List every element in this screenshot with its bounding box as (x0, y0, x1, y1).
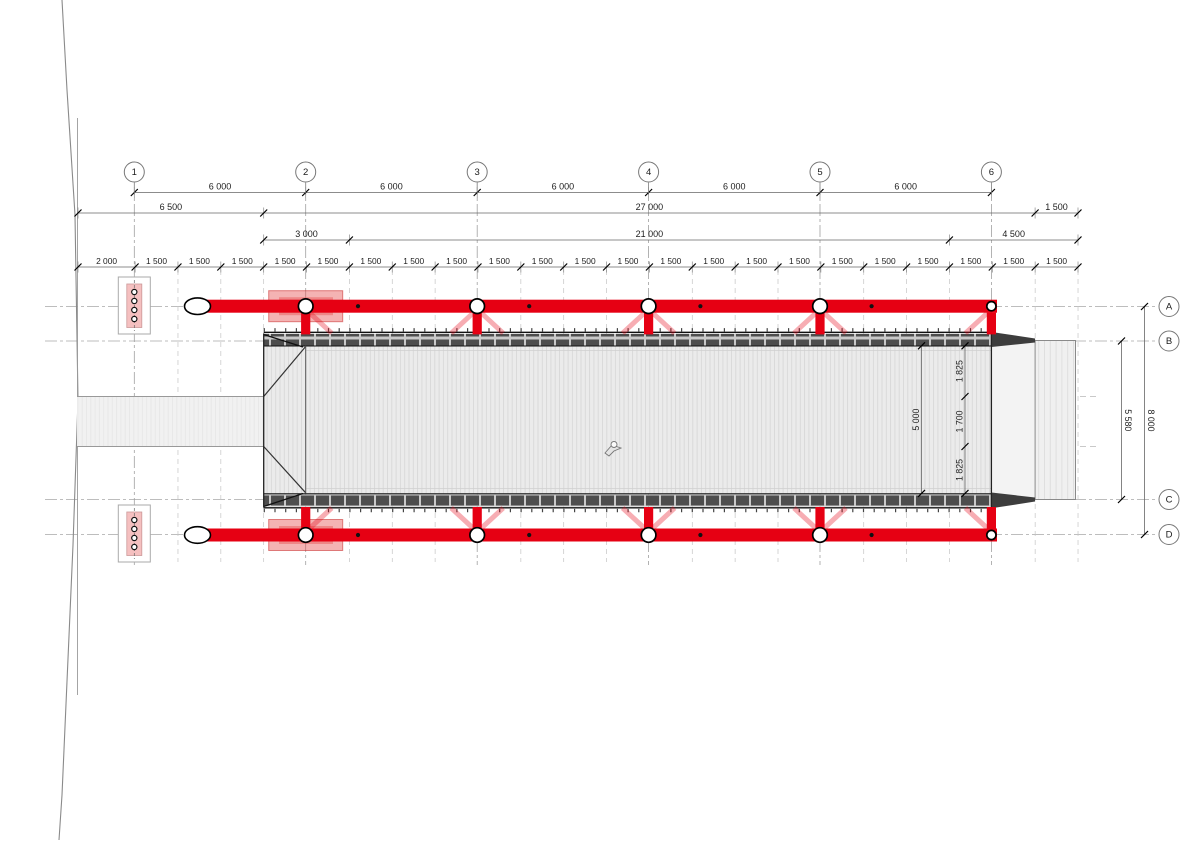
grid-bubble-label: B (1166, 336, 1172, 347)
dimension-label: 1 500 (918, 256, 939, 266)
bridge-plan-drawing: 6 0006 0006 0006 0006 0006 50027 0001 50… (0, 0, 1200, 848)
truss-node (298, 299, 313, 314)
dimension-label: 1 500 (1045, 202, 1068, 212)
grid-bubble-row-C: C (1159, 490, 1179, 510)
dimension-label: 1 825 (955, 459, 965, 481)
grid-bubble-row-D: D (1159, 525, 1179, 545)
dimension-label: 1 500 (146, 256, 167, 266)
grid-bubble-label: C (1166, 495, 1173, 506)
dimension-label: 8 000 (1146, 409, 1156, 431)
dimension-label: 1 500 (1003, 256, 1024, 266)
truss-node (813, 299, 828, 314)
dimension-label: 1 700 (955, 410, 965, 432)
anchor-circle (132, 544, 137, 549)
dimension-label: 1 500 (832, 256, 853, 266)
dimension-label: 1 500 (660, 256, 681, 266)
dimension-label: 1 500 (746, 256, 767, 266)
anchor-circle (132, 298, 137, 303)
ellipse-cap (185, 527, 211, 544)
approach-path (77, 397, 264, 447)
pier (118, 277, 150, 334)
truss-row-D (185, 507, 998, 551)
dimension-label: 4 500 (1002, 229, 1025, 239)
anchor-circle (132, 289, 137, 294)
site-boundary-lines (59, 0, 78, 840)
landing-slab (1035, 341, 1075, 500)
grid-bubble-label: 4 (646, 167, 651, 178)
grid-bubble-row-A: A (1159, 297, 1179, 317)
grid-bubble-label: A (1166, 302, 1173, 313)
dimension-label: 21 000 (636, 229, 664, 239)
dimension-label: 1 500 (532, 256, 553, 266)
grid-bubble-column-6: 6 (981, 162, 1001, 193)
truss-row-A (185, 291, 998, 335)
grid-bubble-label: 6 (989, 167, 994, 178)
anchor-circle (132, 316, 137, 321)
dimension-label: 27 000 (636, 202, 664, 212)
dimension-label: 1 500 (875, 256, 896, 266)
anchor-circle (132, 535, 137, 540)
dimension-label: 1 500 (789, 256, 810, 266)
dimension-label: 1 500 (703, 256, 724, 266)
grid-bubble-column-3: 3 (467, 162, 487, 193)
grid-bubble-label: 2 (303, 167, 308, 178)
deck-surface (264, 346, 992, 494)
dimension-label: 1 500 (489, 256, 510, 266)
grid-bubble-column-2: 2 (296, 162, 316, 193)
grid-bubble-column-4: 4 (639, 162, 659, 193)
truss-node (641, 528, 656, 543)
grid-bubble-label: 5 (817, 167, 822, 178)
truss-node (470, 528, 485, 543)
dimension-label: 5 000 (911, 408, 921, 430)
truss-node (987, 530, 996, 539)
truss-node (987, 302, 996, 311)
grid-bubble-label: 3 (475, 167, 480, 178)
dimension-label: 3 000 (295, 229, 318, 239)
dimension-label: 6 000 (380, 181, 403, 191)
riverbank-line (59, 0, 78, 840)
dimension-label: 1 500 (317, 256, 338, 266)
dimension-label: 6 000 (723, 181, 746, 191)
truss-node (470, 299, 485, 314)
dimension-label: 6 000 (209, 181, 232, 191)
anchor-circle (132, 517, 137, 522)
dimension-label: 6 000 (552, 181, 575, 191)
anchor-circle (132, 307, 137, 312)
grid-bubble-label: D (1166, 530, 1173, 541)
dimension-label: 1 500 (232, 256, 253, 266)
dimension-label: 2 000 (96, 256, 117, 266)
truss-node (641, 299, 656, 314)
grid-bubble-row-B: B (1159, 331, 1179, 351)
dimension-label: 1 500 (618, 256, 639, 266)
grid-bubble-column-5: 5 (810, 162, 830, 193)
dimension-label: 6 000 (894, 181, 917, 191)
dimension-label: 1 500 (275, 256, 296, 266)
dimension-label: 1 500 (403, 256, 424, 266)
dimension-label: 6 500 (160, 202, 183, 212)
deck-edge-band (264, 334, 992, 346)
dimension-label: 5 580 (1123, 409, 1133, 431)
pier (118, 505, 150, 562)
grid-bubble-column-1: 1 (124, 162, 144, 193)
grid-bubble-label: 1 (132, 167, 137, 178)
deck-edge-band (264, 495, 992, 507)
truss-node (813, 528, 828, 543)
ellipse-cap (185, 298, 211, 315)
dimension-label: 1 825 (955, 360, 965, 382)
dimension-label: 1 500 (189, 256, 210, 266)
dimension-label: 1 500 (575, 256, 596, 266)
truss-node (298, 528, 313, 543)
anchor-circle (132, 526, 137, 531)
dimension-label: 1 500 (360, 256, 381, 266)
dimension-label: 1 500 (1046, 256, 1067, 266)
floor-plan-canvas: 6 0006 0006 0006 0006 0006 50027 0001 50… (0, 0, 1200, 848)
dimension-label: 1 500 (960, 256, 981, 266)
dimension-label: 1 500 (446, 256, 467, 266)
